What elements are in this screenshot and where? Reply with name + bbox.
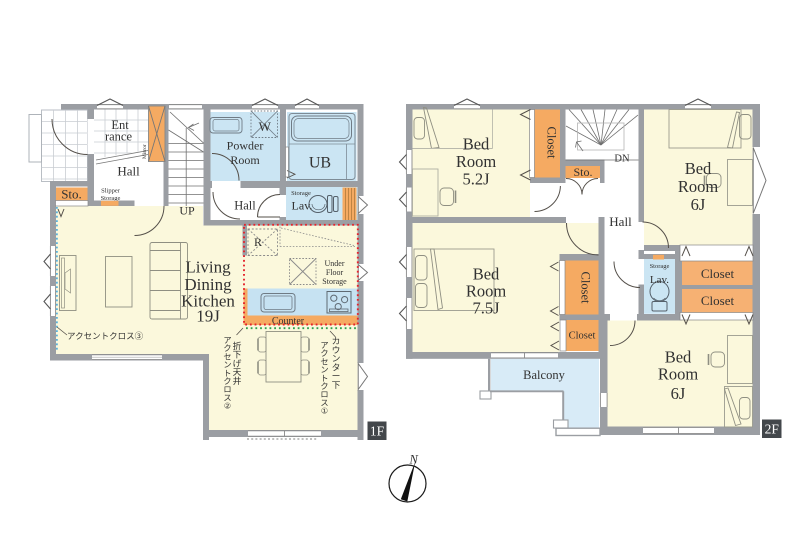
svg-text:W: W [259, 119, 272, 134]
svg-text:Bed: Bed [463, 135, 490, 154]
svg-text:Slipper: Slipper [101, 188, 121, 195]
svg-text:Powder: Powder [227, 139, 264, 153]
svg-text:N: N [409, 453, 419, 467]
svg-text:19J: 19J [196, 307, 220, 326]
svg-text:下: 下 [332, 380, 341, 390]
svg-text:UB: UB [309, 155, 331, 172]
svg-text:Hall: Hall [234, 199, 256, 213]
svg-text:Hall: Hall [117, 164, 140, 179]
svg-text:Floor: Floor [326, 268, 344, 277]
svg-text:Bed: Bed [685, 159, 712, 178]
svg-text:①: ① [321, 407, 328, 416]
svg-text:UP: UP [179, 204, 195, 218]
svg-text:Storage: Storage [650, 263, 670, 270]
svg-text:Storage: Storage [291, 190, 311, 197]
svg-text:Closet: Closet [701, 293, 735, 308]
svg-text:Sto.: Sto. [61, 187, 82, 202]
svg-text:Under: Under [325, 259, 345, 268]
svg-text:Closet: Closet [579, 272, 593, 304]
svg-text:rance: rance [105, 130, 133, 144]
svg-text:井: 井 [233, 375, 242, 386]
svg-text:Balcony: Balcony [523, 368, 565, 382]
svg-text:Room: Room [456, 152, 497, 171]
svg-text:6J: 6J [671, 384, 686, 403]
svg-text:Lav.: Lav. [292, 199, 313, 213]
svg-text:DN: DN [614, 154, 630, 165]
svg-text:Room: Room [230, 153, 260, 167]
svg-text:アクセントクロス③: アクセントクロス③ [67, 331, 144, 341]
svg-text:R: R [254, 235, 262, 249]
svg-text:Room: Room [658, 365, 699, 384]
svg-text:1F: 1F [370, 424, 385, 439]
svg-text:2F: 2F [765, 422, 780, 437]
svg-text:Lav.: Lav. [650, 274, 669, 286]
svg-text:Hall: Hall [609, 214, 632, 229]
svg-text:Mirror: Mirror [142, 144, 148, 159]
svg-text:Living: Living [185, 258, 231, 277]
svg-text:Closet: Closet [701, 266, 735, 281]
svg-text:Storage: Storage [322, 277, 347, 286]
svg-text:5.2J: 5.2J [462, 170, 490, 189]
svg-text:Closet: Closet [545, 127, 559, 159]
svg-text:Room: Room [678, 177, 719, 196]
svg-text:6J: 6J [691, 195, 706, 214]
svg-text:Counter: Counter [272, 316, 305, 327]
svg-text:②: ② [224, 402, 231, 411]
svg-text:Sto.: Sto. [573, 165, 592, 179]
svg-text:7.5J: 7.5J [472, 299, 500, 318]
svg-text:Closet: Closet [569, 331, 596, 342]
